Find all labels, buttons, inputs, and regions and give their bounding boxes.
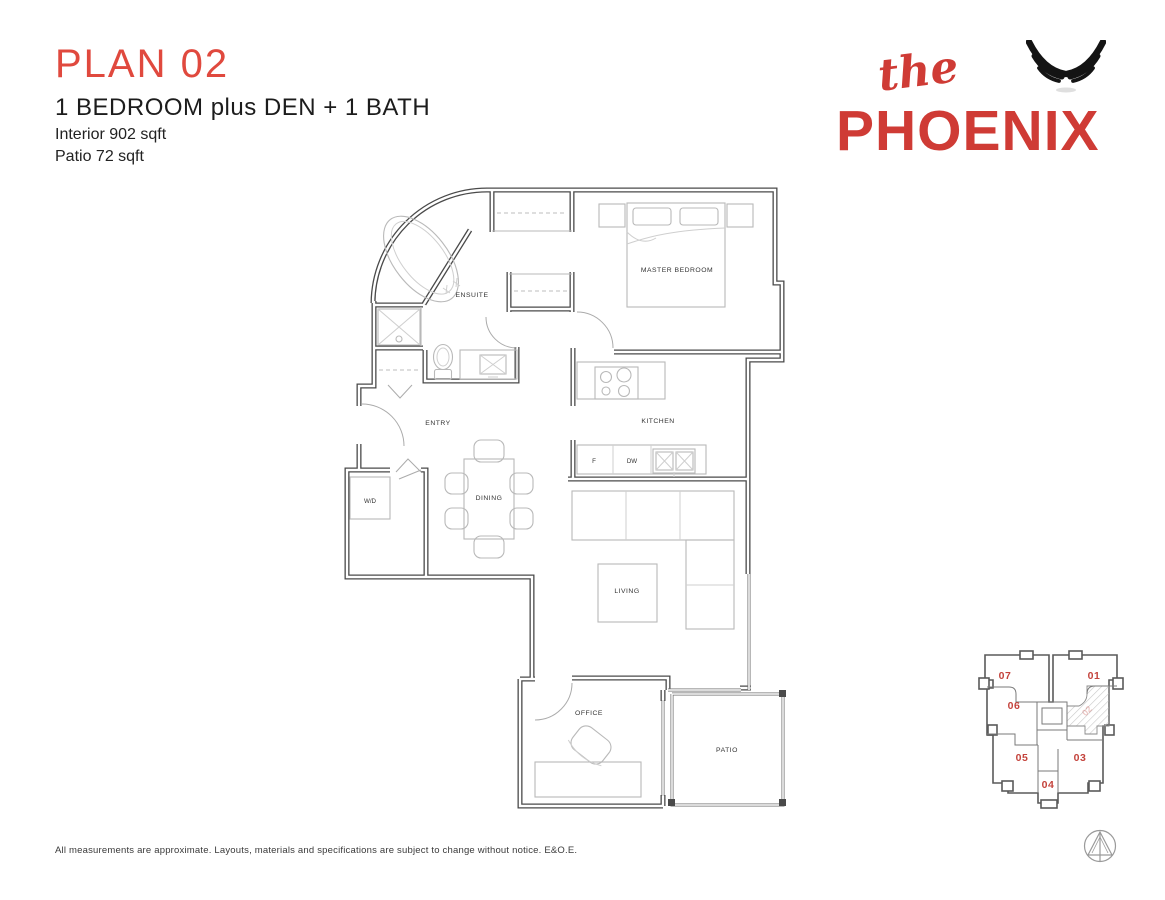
brochure-page: PLAN 02 1 BEDROOM plus DEN + 1 BATH Inte… [0, 0, 1165, 900]
patio-post [668, 799, 675, 806]
closet-front [492, 231, 572, 274]
room-label-office: OFFICE [575, 710, 603, 717]
patio-post [779, 799, 786, 806]
keyplan-unit-07: 07 [999, 670, 1012, 682]
ensuite-door-arc [486, 317, 517, 348]
keyplan-unit-04: 04 [1042, 779, 1055, 791]
stove-icon [595, 367, 638, 399]
entry-door-arc [362, 404, 404, 446]
bifold-door-chevron [388, 385, 421, 472]
toilet-icon [434, 345, 453, 380]
keyplan-unit-01: 01 [1088, 670, 1101, 682]
patio-post [779, 690, 786, 697]
label-dishwasher: DW [627, 458, 637, 465]
fixtures [350, 203, 753, 797]
walls [347, 190, 786, 806]
label-fridge: F [592, 458, 596, 465]
room-label-entry: ENTRY [425, 420, 450, 427]
room-label-living: LIVING [614, 588, 639, 595]
floor-plan: MASTER BEDROOM ENSUITE ENTRY KITCHEN DIN… [0, 0, 1165, 900]
vanity-sink-icon [460, 350, 517, 379]
wd-door-leaf [399, 470, 421, 479]
sofa-icon [572, 491, 734, 629]
compass-north-icon [1085, 831, 1116, 862]
key-plan: 07 01 06 05 03 04 02 [979, 651, 1123, 808]
disclaimer: All measurements are approximate. Layout… [55, 845, 577, 856]
kitchen-sink-icon [653, 449, 695, 477]
room-label-dining: DINING [476, 495, 503, 502]
office-door-arc [535, 683, 572, 720]
keyplan-unit-06: 06 [1008, 700, 1021, 712]
room-label-ensuite: ENSUITE [456, 292, 489, 299]
keyplan-unit-03: 03 [1074, 752, 1087, 764]
bed-icon [599, 203, 753, 307]
room-label-master-bedroom: MASTER BEDROOM [641, 267, 713, 274]
bedroom-door-arc [577, 312, 613, 348]
room-label-kitchen: KITCHEN [641, 418, 674, 425]
label-washer-dryer: W/D [364, 498, 377, 505]
nightstand-icon [599, 204, 625, 227]
keyplan-unit-05: 05 [1016, 752, 1029, 764]
room-label-patio: PATIO [716, 747, 738, 754]
nightstand-icon [727, 204, 753, 227]
shower-icon [378, 307, 421, 346]
desk-chair-icon [535, 721, 641, 797]
